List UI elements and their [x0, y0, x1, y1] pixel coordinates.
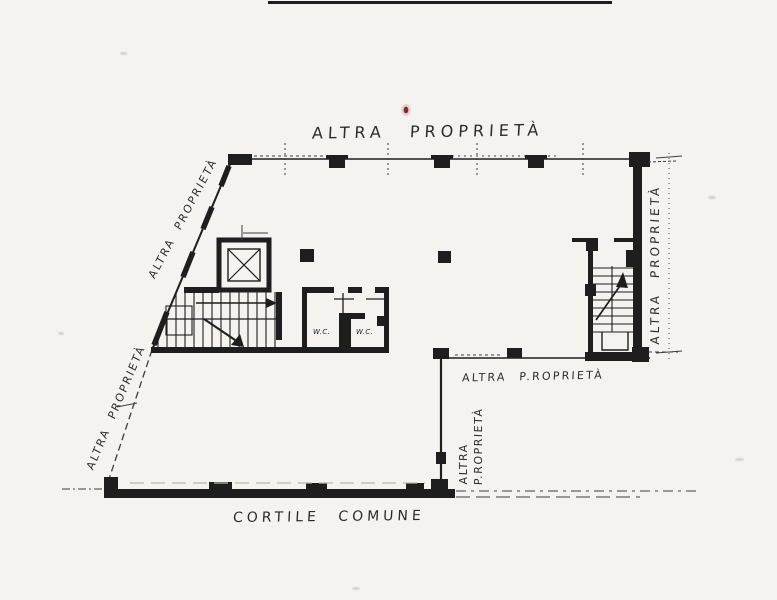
bottom-wall: [104, 477, 455, 498]
scan-smudge: [735, 458, 744, 461]
label-wc-right: W.C.: [356, 328, 373, 336]
label-wc-left: W.C.: [313, 328, 330, 336]
left-staircase: [158, 292, 282, 349]
stair-direction-arrow-upper: [196, 298, 277, 308]
dashed-extensions: [62, 352, 700, 497]
inner-label-line1: ALTRA: [457, 443, 470, 485]
inner-label-line2: P.ROPRIETÀ: [472, 407, 485, 485]
scan-smudge: [120, 52, 127, 55]
wc-rooms: [302, 287, 389, 353]
elevator-x-mark: [228, 249, 260, 281]
scan-smudge: [352, 587, 360, 590]
scan-smudge: [58, 332, 64, 335]
scan-smudge: [708, 196, 716, 199]
vertical-boundary-wall: [436, 359, 446, 489]
top-boundary-wall: [228, 152, 650, 168]
red-pen-mark: [401, 104, 411, 116]
interior-pillars: [300, 249, 451, 263]
stair-direction-arrow-lower: [204, 319, 244, 347]
label-altra-proprieta-top: ALTRA PROPRIETÀ: [311, 120, 543, 142]
label-altra-proprieta-inner-vertical: ALTRAP.ROPRIETÀ: [456, 406, 486, 485]
label-cortile-comune: CORTILE COMUNE: [233, 508, 426, 526]
label-altra-proprieta-right: ALTRA PROPRIETÀ: [648, 184, 662, 345]
elevator-shaft: [219, 225, 269, 290]
scanned-floorplan-page: ALTRA PROPRIETÀ ALTRA PROPRIETÀ ALTRA PR…: [0, 0, 777, 600]
scan-edge-bar: [268, 1, 612, 4]
